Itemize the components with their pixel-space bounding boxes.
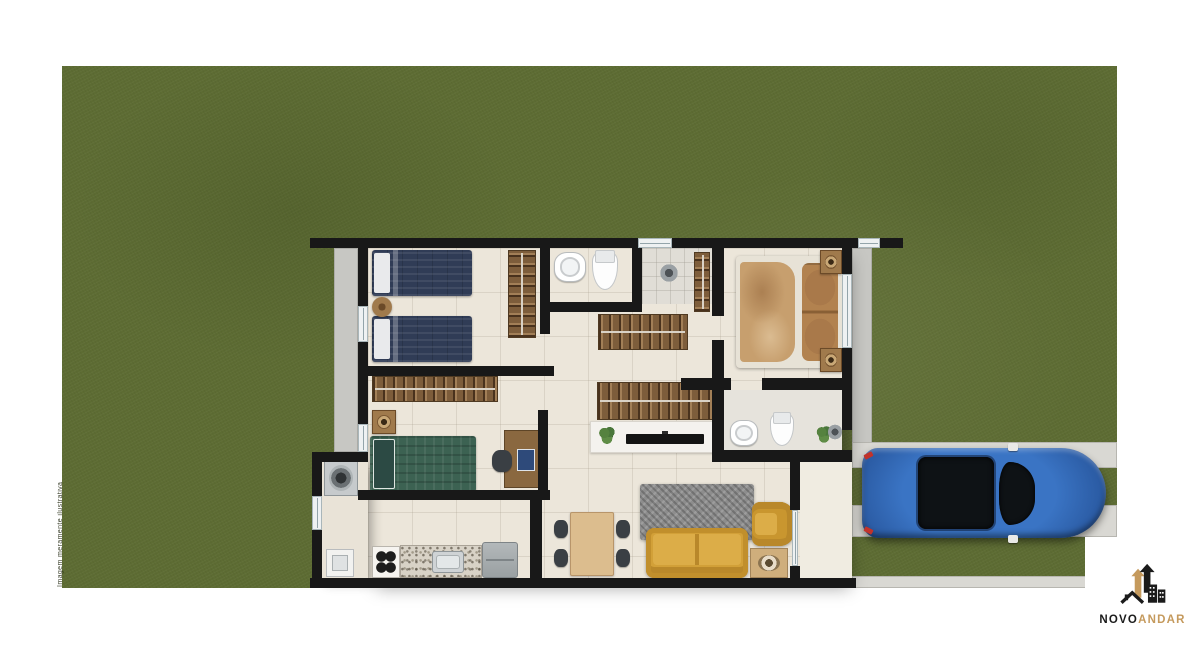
bed1-wardrobe (508, 250, 536, 338)
novoandar-logo-icon (1116, 563, 1170, 611)
car-mirror-top (1008, 443, 1018, 451)
wall-master-bottom-b (762, 378, 842, 390)
window-left-a (358, 306, 368, 342)
sofa (646, 528, 748, 578)
bath2-sink (730, 420, 758, 446)
wall-master-left-up (712, 248, 724, 316)
bed1-round-table (372, 297, 392, 317)
disclaimer-text: Imagem meramente ilustrativa (57, 476, 73, 592)
wall-bed3-bottom (358, 490, 550, 500)
wall-top (310, 238, 903, 248)
sidewalk-left (334, 248, 358, 452)
wall-service-top (312, 452, 368, 462)
window-left-b (358, 424, 368, 452)
window-top-b (858, 238, 880, 248)
bed3-closet (372, 376, 498, 402)
twin-bed-a (372, 250, 472, 296)
laundry-tank (326, 549, 354, 577)
washing-machine (324, 460, 358, 496)
dining-chair-2 (554, 549, 568, 567)
window-right-a (842, 274, 852, 348)
desk-chair (492, 450, 512, 472)
console-plant (598, 425, 616, 445)
dining-chair-3 (616, 520, 630, 538)
wall-bath2-bottom (712, 450, 852, 462)
hall-wardrobe-vertical (694, 252, 710, 312)
wall-master-left-low (712, 340, 724, 462)
wall-bath1-bottom (550, 302, 642, 312)
wall-bottom (310, 578, 856, 588)
bath1-sink (554, 252, 586, 282)
sliding-door-glass (792, 510, 798, 566)
fridge (482, 542, 518, 578)
kitchen-sink (432, 551, 464, 573)
brand-logo: NOVOANDAR (1085, 537, 1200, 652)
car-mirror-bottom (1008, 535, 1018, 543)
wall-master-bottom-a (681, 378, 731, 390)
car-windshield (999, 462, 1036, 525)
dining-table (570, 512, 614, 576)
logo-text-primary: NOVO (1099, 614, 1138, 626)
wall-porch-door-up (790, 462, 800, 510)
hall-closet-upper (598, 314, 688, 350)
wall-kitchen-divider (530, 500, 542, 578)
wall-bed1-bath1 (540, 248, 550, 334)
dining-chair-4 (616, 549, 630, 567)
master-nightstand-b (820, 348, 842, 372)
floorplan-image: Imagem meramente ilustrativa NOVOANDAR (0, 0, 1200, 652)
tv (626, 434, 704, 444)
sidewalk-right (852, 248, 872, 448)
car-glass (918, 457, 994, 529)
twin-bed-b (372, 316, 472, 362)
car (862, 448, 1106, 538)
shower1-head (660, 264, 678, 282)
window-service (312, 496, 322, 530)
master-nightstand-a (820, 250, 842, 274)
side-table-lamp (750, 548, 788, 578)
bed3-nightstand (372, 410, 396, 434)
armchair (752, 502, 794, 546)
floor-porch (800, 462, 852, 578)
driveway-curb-bottom (852, 576, 1117, 588)
wall-porch-door-low (790, 566, 800, 578)
logo-wordmark: NOVOANDAR (1099, 614, 1185, 626)
stove (372, 546, 400, 578)
wall-bed1-bottom (368, 366, 554, 376)
wall-bed3-right (538, 410, 548, 500)
single-bed-green (370, 436, 476, 492)
logo-text-secondary: ANDAR (1138, 614, 1186, 626)
window-top-a (638, 238, 672, 248)
dining-chair-1 (554, 520, 568, 538)
shower2-head (828, 424, 842, 440)
wall-bath1-right (632, 248, 642, 310)
